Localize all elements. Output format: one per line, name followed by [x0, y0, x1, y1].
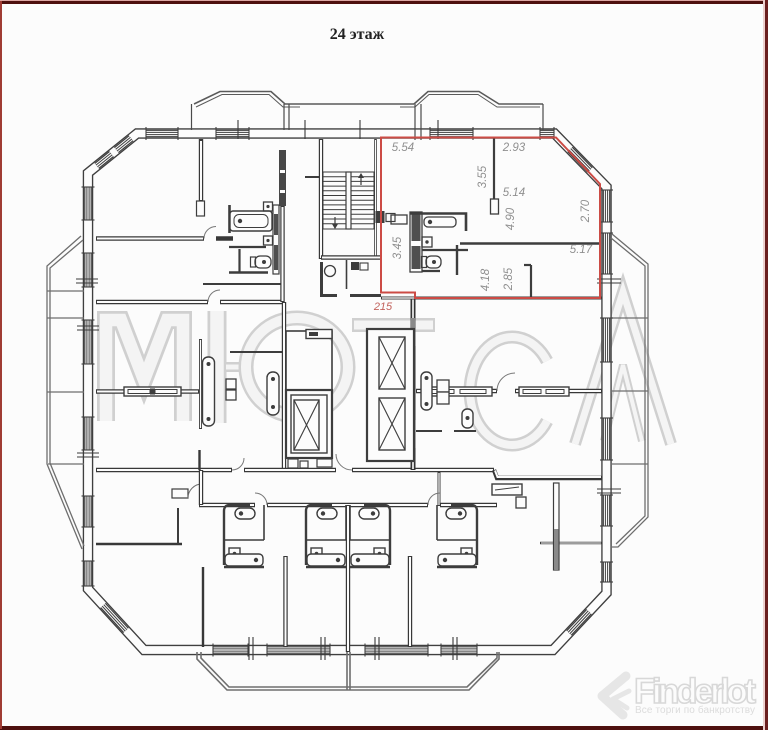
svg-text:24 этаж: 24 этаж	[330, 26, 385, 43]
svg-text:5.17: 5.17	[570, 244, 593, 256]
svg-text:2.93: 2.93	[502, 142, 526, 154]
svg-text:4.90: 4.90	[505, 207, 517, 230]
svg-text:2.85: 2.85	[503, 267, 515, 291]
svg-text:5.54: 5.54	[392, 142, 414, 154]
svg-text:3.55: 3.55	[477, 165, 489, 188]
svg-text:3.45: 3.45	[392, 236, 404, 259]
svg-text:215: 215	[373, 301, 393, 313]
svg-text:4.18: 4.18	[480, 268, 492, 291]
svg-text:2.70: 2.70	[580, 199, 592, 223]
svg-text:5.14: 5.14	[503, 187, 525, 199]
svg-text:Все торги по банкротству: Все торги по банкротству	[635, 704, 755, 716]
